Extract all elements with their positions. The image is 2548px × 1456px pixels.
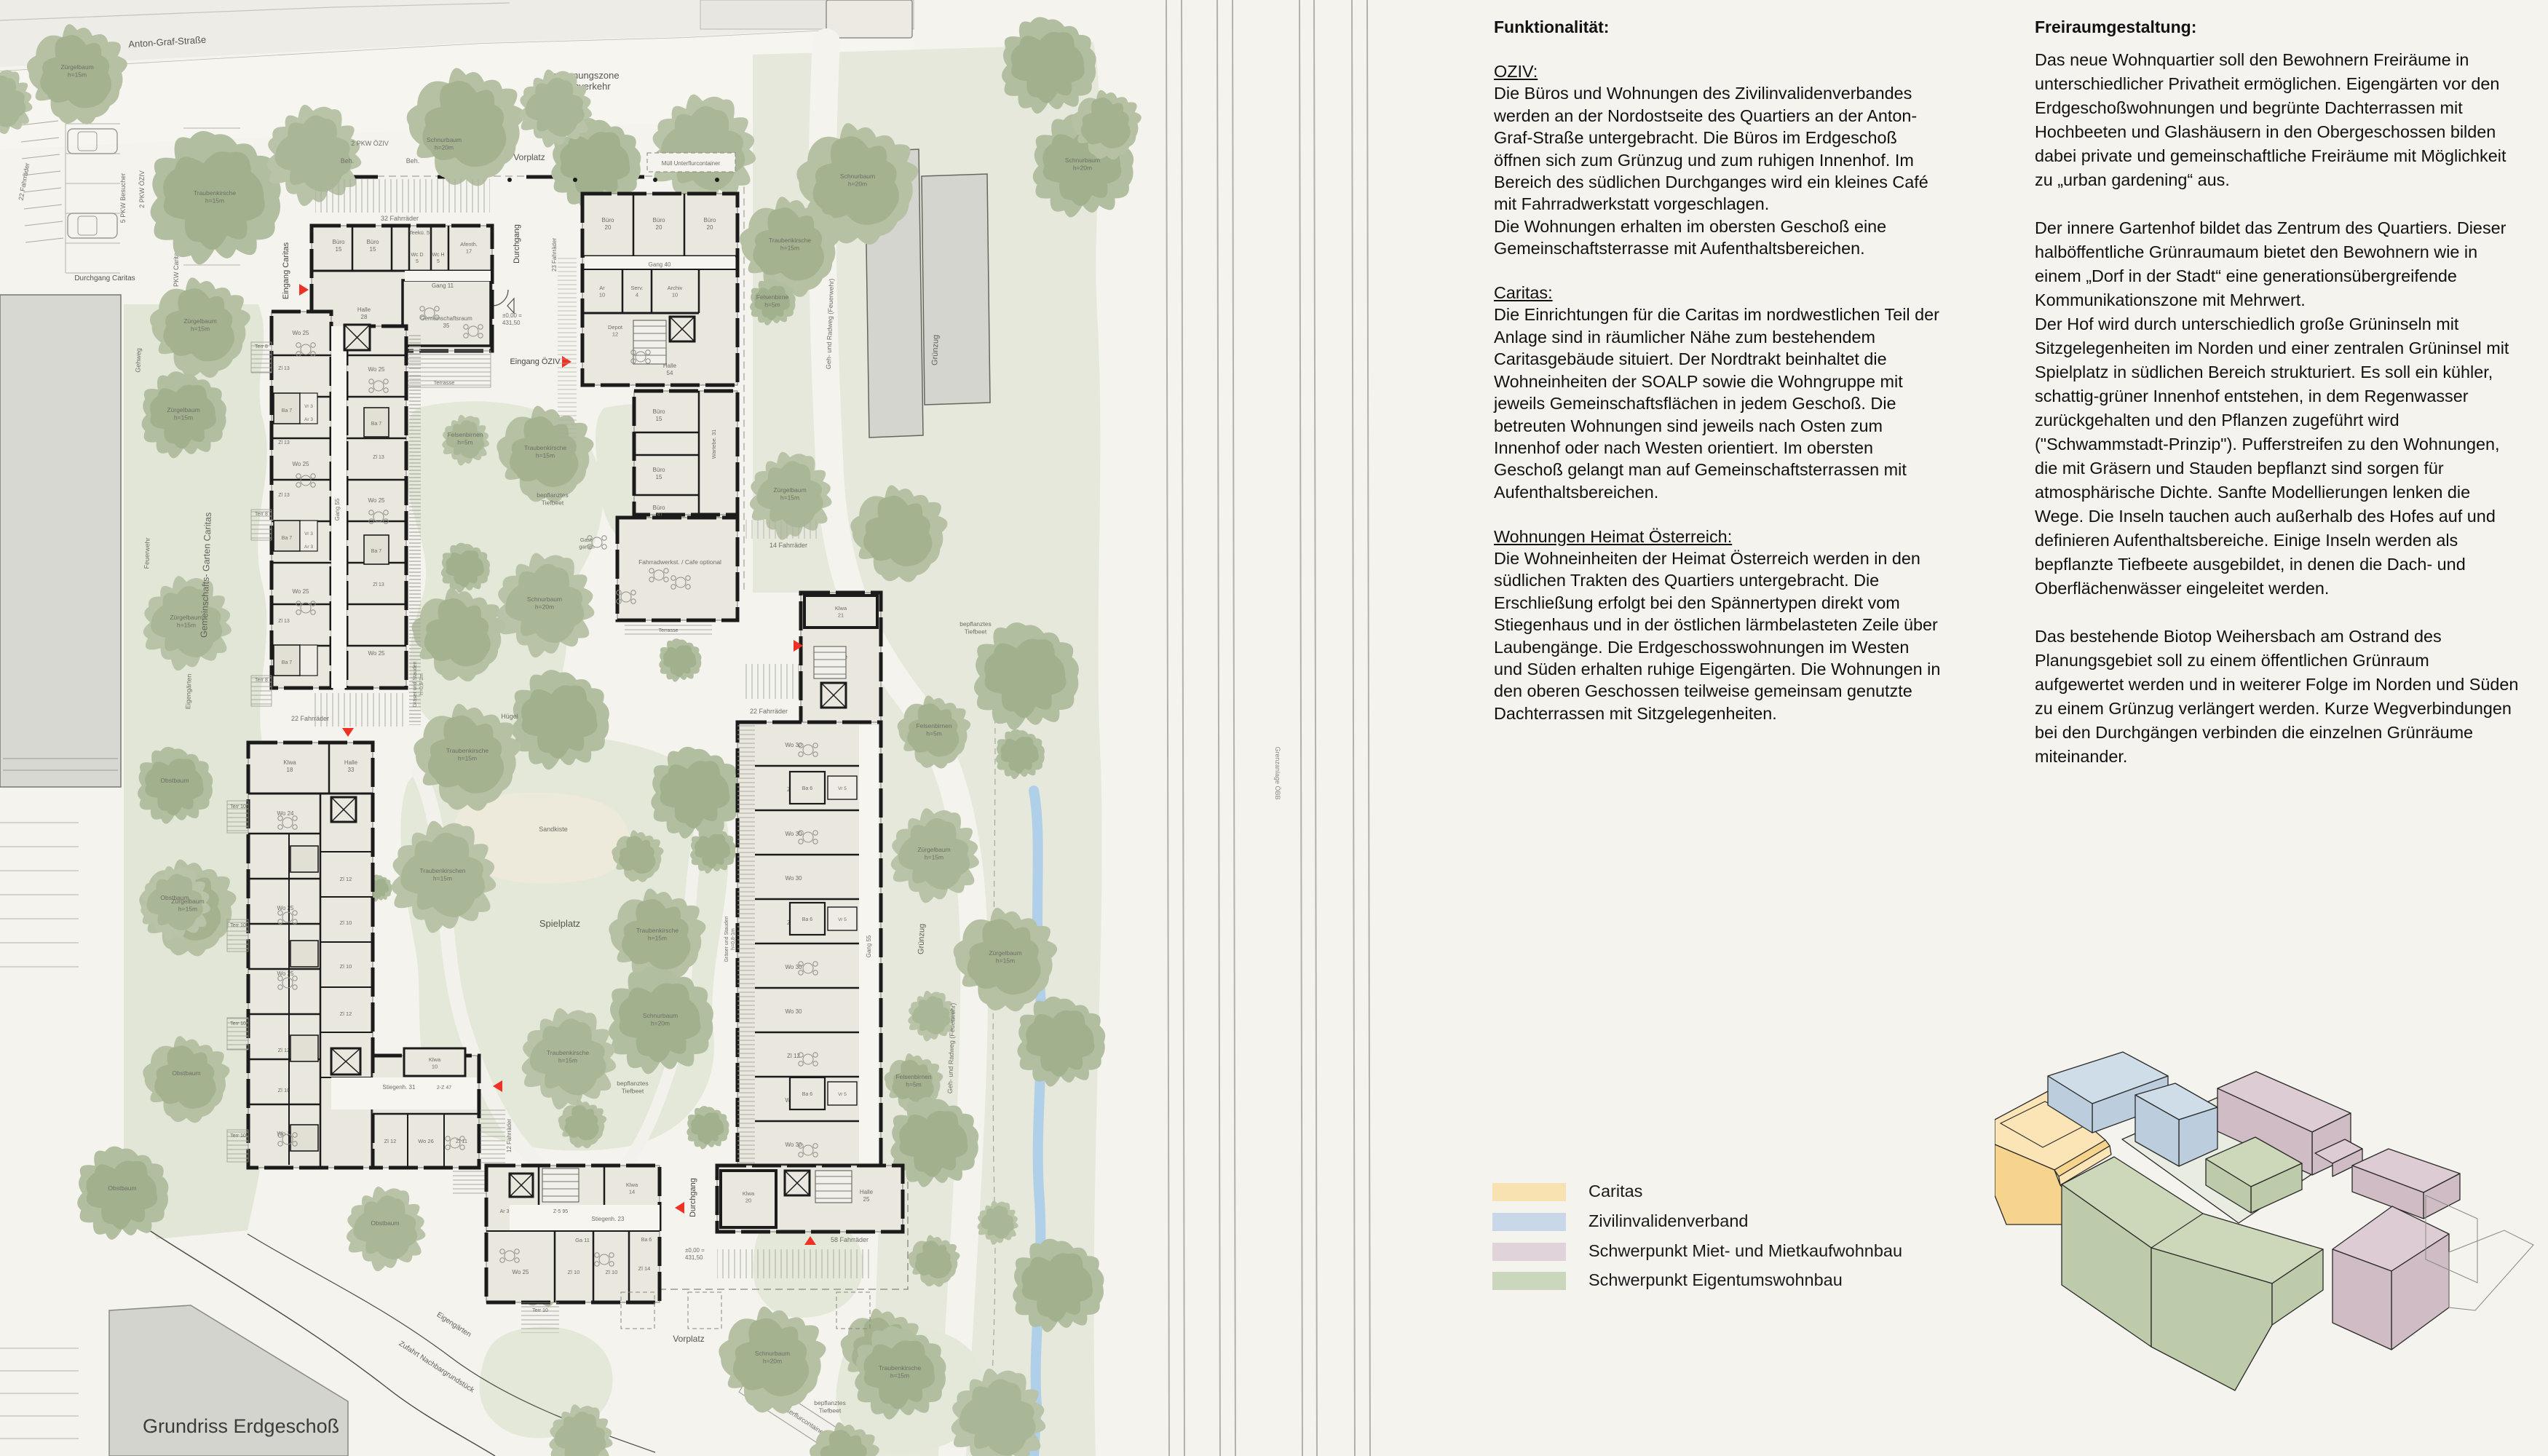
svg-text:Obstbaum: Obstbaum — [160, 894, 189, 901]
svg-text:Obstbaum: Obstbaum — [371, 1219, 399, 1227]
svg-text:Terr 8: Terr 8 — [255, 678, 268, 683]
svg-text:Eingang Caritas: Eingang Caritas — [282, 242, 290, 299]
svg-text:Ba 6: Ba 6 — [802, 917, 813, 922]
svg-text:Wo 25: Wo 25 — [368, 366, 386, 373]
svg-text:Stiegenh. 23: Stiegenh. 23 — [592, 1216, 625, 1222]
svg-text:Ba 6: Ba 6 — [802, 786, 813, 791]
svg-text:Grünzug: Grünzug — [930, 335, 940, 366]
svg-text:Durchgang Caritas: Durchgang Caritas — [74, 274, 135, 282]
svg-text:12 Fahrräder: 12 Fahrräder — [506, 1119, 513, 1153]
svg-text:2-Z 47: 2-Z 47 — [437, 1085, 451, 1091]
svg-text:Zl 14: Zl 14 — [638, 1265, 651, 1272]
svg-text:Gang 55: Gang 55 — [334, 498, 341, 521]
svg-text:23 Fahrräder: 23 Fahrräder — [551, 238, 558, 272]
svg-text:5 PKW Besucher: 5 PKW Besucher — [119, 173, 127, 223]
svg-text:Zl 10: Zl 10 — [278, 1087, 290, 1093]
svg-text:Vorplatz: Vorplatz — [513, 152, 545, 162]
svg-text:Ba 6: Ba 6 — [641, 1238, 652, 1243]
svg-text:14 Fahrräder: 14 Fahrräder — [769, 542, 807, 549]
svg-text:±0,00 =431,50: ±0,00 =431,50 — [685, 1247, 705, 1261]
svg-text:Obstbaum: Obstbaum — [108, 1184, 136, 1192]
svg-text:22 Fahrräder: 22 Fahrräder — [17, 162, 31, 201]
svg-text:Zl 13: Zl 13 — [278, 440, 290, 446]
svg-text:Wo 30: Wo 30 — [786, 831, 803, 837]
svg-text:Wo 30: Wo 30 — [786, 1008, 803, 1015]
svg-text:Ar10: Ar10 — [599, 285, 605, 298]
svg-text:Beh.: Beh. — [406, 157, 420, 165]
svg-text:22 Fahrräder: 22 Fahrräder — [750, 708, 788, 715]
svg-text:Gräser und Staudenh=0,8-1m: Gräser und Staudenh=0,8-1m — [724, 916, 736, 962]
svg-text:Hügel: Hügel — [501, 713, 518, 720]
svg-text:Zl 13: Zl 13 — [278, 366, 290, 371]
svg-text:Wo 25: Wo 25 — [293, 588, 310, 595]
svg-text:Sandkiste: Sandkiste — [539, 826, 568, 833]
svg-text:Wo 25: Wo 25 — [293, 461, 310, 467]
svg-text:Zl 10: Zl 10 — [568, 1269, 580, 1275]
svg-text:Terrasse: Terrasse — [659, 628, 678, 633]
svg-text:Durchgang: Durchgang — [513, 224, 521, 264]
svg-text:Terr 10: Terr 10 — [230, 1133, 246, 1139]
svg-text:22 Fahrräder: 22 Fahrräder — [291, 715, 329, 722]
svg-text:Eingang ÖZIV: Eingang ÖZIV — [510, 357, 561, 366]
svg-text:Wartebe. 31: Wartebe. 31 — [711, 430, 717, 459]
svg-text:Wo 25: Wo 25 — [368, 650, 386, 657]
svg-text:Wo 25: Wo 25 — [293, 330, 310, 336]
svg-text:Ar 3: Ar 3 — [304, 417, 313, 422]
svg-text:Gang 55: Gang 55 — [866, 935, 872, 957]
svg-text:Wo 26: Wo 26 — [418, 1138, 434, 1144]
svg-text:Grünzug: Grünzug — [917, 924, 926, 955]
svg-text:Terr 10: Terr 10 — [230, 804, 246, 810]
svg-text:Zl 12: Zl 12 — [340, 1010, 352, 1017]
svg-text:Zl 12: Zl 12 — [278, 1047, 290, 1053]
svg-text:Z-5 95: Z-5 95 — [553, 1209, 568, 1214]
svg-text:Gang 40: Gang 40 — [649, 261, 671, 268]
svg-text:Zl 10: Zl 10 — [606, 1269, 618, 1275]
svg-text:2 PKW ÖZIV: 2 PKW ÖZIV — [138, 170, 146, 208]
svg-text:Ga 11: Ga 11 — [575, 1237, 590, 1243]
svg-text:Eigengärten: Eigengärten — [435, 1311, 472, 1340]
svg-text:Ba 7: Ba 7 — [282, 536, 293, 541]
svg-text:Beh.: Beh. — [341, 157, 355, 165]
svg-text:Obstbaum: Obstbaum — [172, 1069, 200, 1077]
svg-text:Terr 10: Terr 10 — [230, 1021, 246, 1026]
svg-text:2 PKW ÖZIV: 2 PKW ÖZIV — [351, 140, 389, 147]
svg-text:Müll Unterflurcontainer: Müll Unterflurcontainer — [662, 160, 721, 167]
svg-text:Ba 7: Ba 7 — [282, 660, 293, 665]
svg-text:Zl 13: Zl 13 — [373, 582, 384, 587]
svg-text:Teekü. 5: Teekü. 5 — [409, 229, 430, 236]
svg-text:Wo 25: Wo 25 — [368, 497, 386, 504]
svg-text:Zl 13: Zl 13 — [278, 493, 290, 498]
svg-text:Vr 5: Vr 5 — [838, 917, 847, 922]
svg-text:Vorplatz: Vorplatz — [673, 1334, 704, 1344]
svg-text:Terr 8: Terr 8 — [255, 512, 268, 517]
svg-text:Ar 3: Ar 3 — [304, 545, 313, 550]
svg-text:±0,00 =431,50: ±0,00 =431,50 — [502, 312, 522, 326]
svg-text:Ba 7: Ba 7 — [371, 422, 382, 427]
svg-text:Vr 5: Vr 5 — [838, 786, 847, 791]
svg-text:Grundriss Erdgeschoß: Grundriss Erdgeschoß — [143, 1415, 339, 1437]
svg-text:Wo 25: Wo 25 — [513, 1269, 530, 1275]
svg-text:Zl 13: Zl 13 — [373, 455, 384, 460]
svg-text:Terr 10: Terr 10 — [230, 923, 246, 928]
svg-text:Grenzanlage ÖBB: Grenzanlage ÖBB — [1274, 746, 1281, 799]
svg-text:Spielplatz: Spielplatz — [539, 918, 580, 929]
svg-text:Gehweg: Gehweg — [134, 348, 142, 373]
svg-text:58 Fahrräder: 58 Fahrräder — [831, 1236, 869, 1243]
svg-text:Obstbaum: Obstbaum — [160, 777, 189, 784]
svg-text:Vr 3: Vr 3 — [304, 531, 313, 537]
svg-text:Stiegenh. 31: Stiegenh. 31 — [383, 1084, 416, 1091]
svg-text:Vr 3: Vr 3 — [304, 404, 313, 409]
svg-text:Zl 12: Zl 12 — [384, 1138, 397, 1144]
svg-text:Durchgang: Durchgang — [689, 1178, 697, 1217]
svg-text:Zl 12: Zl 12 — [340, 876, 352, 882]
svg-text:Ba 7: Ba 7 — [371, 549, 382, 554]
svg-text:Wo 30: Wo 30 — [786, 875, 803, 882]
svg-text:Gang 11: Gang 11 — [432, 282, 454, 289]
svg-text:Fahrradwerkst. / Cafe optional: Fahrradwerkst. / Cafe optional — [638, 558, 721, 566]
svg-text:Ba 7: Ba 7 — [282, 408, 293, 414]
svg-text:Terrasse: Terrasse — [434, 379, 455, 386]
svg-text:Zl 10: Zl 10 — [340, 919, 352, 926]
svg-text:Terr 10: Terr 10 — [532, 1308, 548, 1313]
svg-text:Ar 3: Ar 3 — [500, 1209, 510, 1214]
svg-text:Zl 10: Zl 10 — [340, 963, 352, 970]
svg-text:Vr 5: Vr 5 — [838, 1092, 847, 1097]
svg-text:Zl 13: Zl 13 — [278, 619, 290, 624]
svg-text:Wo 30: Wo 30 — [786, 1142, 803, 1148]
svg-text:Ba 6: Ba 6 — [802, 1092, 813, 1097]
svg-text:Eigengärten: Eigengärten — [184, 673, 193, 709]
svg-text:Terr 8: Terr 8 — [255, 344, 268, 349]
svg-text:Wo 30: Wo 30 — [786, 964, 803, 970]
svg-text:32 Fahrräder: 32 Fahrräder — [381, 215, 419, 222]
svg-text:Feuerwehr: Feuerwehr — [143, 537, 151, 569]
